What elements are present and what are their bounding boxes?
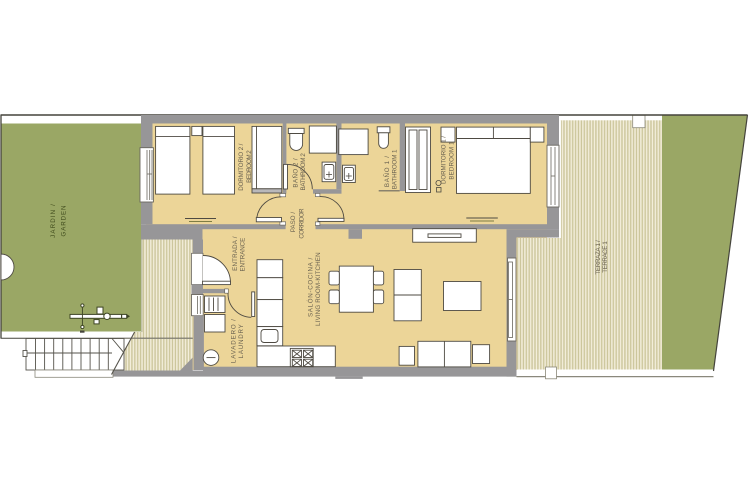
svg-text:BATHROOM 2: BATHROOM 2 bbox=[300, 153, 307, 191]
svg-text:BATHROOM 1: BATHROOM 1 bbox=[392, 149, 399, 189]
svg-text:BAÑO 1 /: BAÑO 1 / bbox=[384, 156, 391, 187]
svg-text:LAVADERO /: LAVADERO / bbox=[231, 319, 238, 363]
svg-text:GARDEN: GARDEN bbox=[61, 206, 68, 237]
svg-text:BAÑO 2 /: BAÑO 2 / bbox=[292, 158, 299, 187]
svg-text:JARDIN /: JARDIN / bbox=[50, 204, 57, 238]
svg-text:LAUNDRY: LAUNDRY bbox=[238, 324, 245, 358]
svg-text:DORMITORIO 1 /: DORMITORIO 1 / bbox=[440, 136, 447, 184]
svg-text:DORMITORIO 2 /: DORMITORIO 2 / bbox=[238, 143, 245, 190]
svg-text:LIVING ROOM-KITCHEN: LIVING ROOM-KITCHEN bbox=[315, 252, 322, 326]
svg-text:TERRAZA 1 /: TERRAZA 1 / bbox=[595, 240, 602, 275]
svg-text:ENTRANCE: ENTRANCE bbox=[239, 238, 246, 272]
svg-text:BEDROOM 1: BEDROOM 1 bbox=[448, 141, 455, 180]
svg-text:ENTRADA /: ENTRADA / bbox=[232, 236, 239, 271]
svg-text:BEDROOM 2: BEDROOM 2 bbox=[246, 150, 253, 183]
svg-text:SALÓN-COCINA /: SALÓN-COCINA / bbox=[307, 257, 314, 317]
svg-text:TERRACE 1: TERRACE 1 bbox=[602, 241, 609, 273]
svg-text:CORRIDOR: CORRIDOR bbox=[299, 208, 306, 239]
svg-text:PASO /: PASO / bbox=[290, 212, 297, 233]
